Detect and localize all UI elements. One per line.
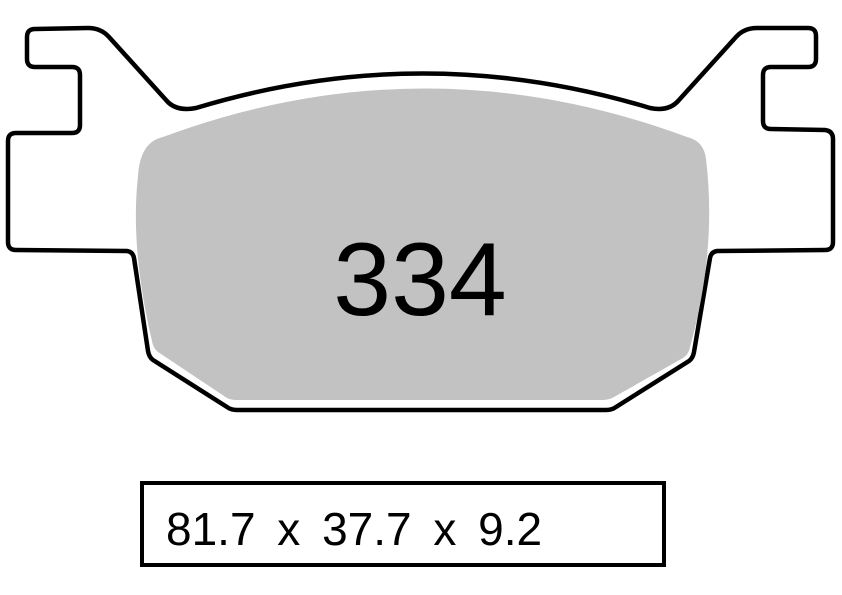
dimensions-label: 81.7 x 37.7 x 9.2 [166,503,542,555]
pad-number-label: 334 [333,222,507,338]
brake-pad-technical-drawing: 334 81.7 x 37.7 x 9.2 [0,0,842,595]
diagram-canvas: 334 81.7 x 37.7 x 9.2 [0,0,842,595]
